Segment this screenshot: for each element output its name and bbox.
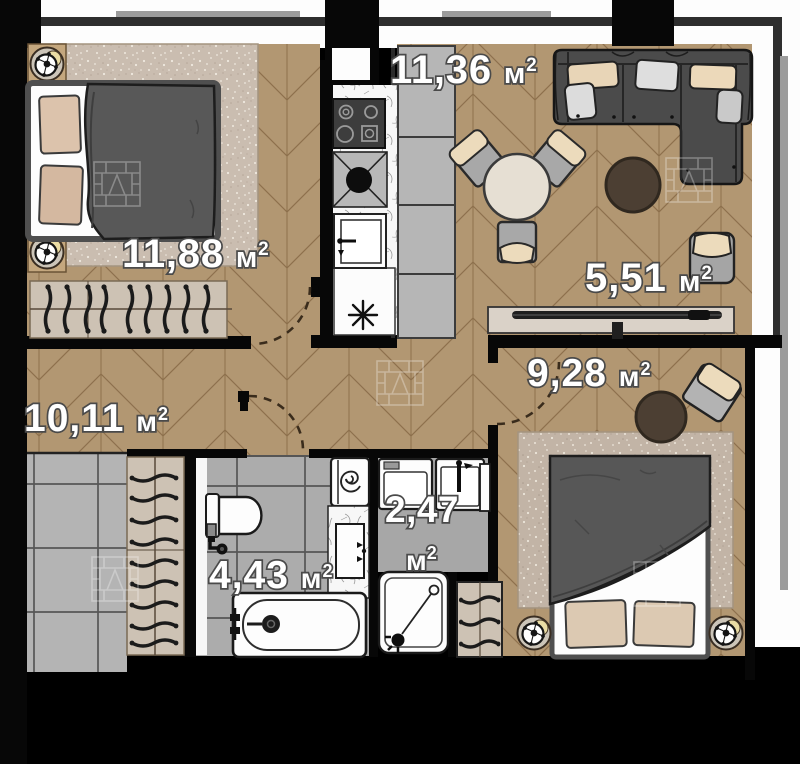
svg-text:2,47: 2,47 [385,489,459,530]
